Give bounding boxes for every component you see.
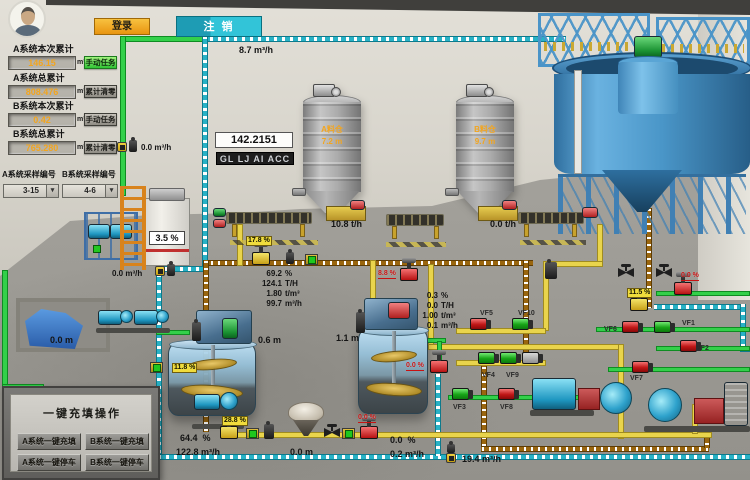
- pipe-green-out-line: [656, 291, 750, 296]
- valve-vf6[interactable]: [622, 321, 639, 333]
- valve-vf5[interactable]: [470, 318, 487, 330]
- panel-title: 一键充填操作: [11, 405, 153, 421]
- valve-vf2[interactable]: [680, 340, 697, 352]
- valve-vf10[interactable]: [512, 318, 529, 330]
- silo-a-name: A料仓: [303, 126, 361, 134]
- transmitter-icon: [545, 262, 557, 279]
- valve-label-vf4: VF4: [482, 372, 495, 379]
- feed-b-rate: 0.0 t/h: [490, 220, 516, 229]
- pit-pump-1[interactable]: [98, 310, 122, 325]
- valve-vf4[interactable]: [478, 352, 495, 364]
- conveyor-leg: [392, 226, 397, 239]
- bottom-control-valve[interactable]: [360, 426, 378, 439]
- reading-b-massflow: 0.0T/H: [408, 302, 454, 310]
- silo-body: [456, 102, 514, 192]
- sampler-a-label: A系统采样编号: [2, 171, 56, 179]
- total-value-b-total[interactable]: 765.280: [8, 141, 76, 155]
- filling-pump-2-motor[interactable]: [724, 382, 748, 426]
- fill-control-valve[interactable]: [220, 426, 238, 439]
- bottom-b-concentration: 0.0 %: [390, 436, 416, 445]
- platform-pump-1[interactable]: [88, 224, 110, 239]
- total-value-b-current[interactable]: 0.42: [8, 113, 76, 127]
- reset-total-a-button[interactable]: 累计清零: [84, 85, 117, 98]
- conveyor-leg: [434, 226, 439, 239]
- manual-valve-icon[interactable]: [324, 424, 340, 437]
- pipe-green-edge: [2, 270, 8, 390]
- conveyor-1-motor-b[interactable]: [213, 219, 226, 228]
- valve-opening-tag: 28.8 %: [222, 416, 248, 426]
- mixer-b-level: 1.1 m: [336, 334, 359, 343]
- valve-spare[interactable]: [522, 352, 539, 364]
- mixer-b-out-valve[interactable]: [430, 360, 448, 373]
- conveyor-1[interactable]: [226, 212, 312, 224]
- flow-left-upper-reading: 0.0 m³/h: [141, 144, 171, 152]
- feed-a-rate: 10.8 t/h: [331, 220, 362, 229]
- pit-pump-1-head[interactable]: [120, 310, 133, 323]
- mixer-discharge-pump-motor[interactable]: [194, 394, 220, 410]
- run-status-light: [93, 245, 101, 253]
- transmitter-icon: [264, 424, 274, 439]
- user-avatar-icon: [8, 0, 46, 38]
- filling-pump-1-motor[interactable]: [532, 378, 576, 410]
- transmitter-icon: [286, 252, 294, 264]
- valve-vf7[interactable]: [632, 361, 649, 373]
- pipe-yellow-bottom: [228, 432, 712, 438]
- bottom-a-flow: 122.8 m³/h: [176, 448, 220, 457]
- control-valve-red[interactable]: [400, 268, 418, 281]
- feeder-b-motor[interactable]: [502, 200, 517, 210]
- valve-label-vf3: VF3: [453, 404, 466, 411]
- b-one-key-fill-button[interactable]: B系统一键充填: [85, 433, 149, 450]
- valve-vf3[interactable]: [452, 388, 469, 400]
- hopper-dome: [288, 402, 324, 422]
- valve-vf9[interactable]: [500, 352, 517, 364]
- floor-hazard-strip: [230, 240, 318, 245]
- pipe-green-left-vertical: [120, 36, 126, 196]
- level-transmitter-icon: [356, 312, 365, 333]
- aeration-nozzle-icon: [292, 188, 306, 196]
- reading-b-flow: 0.1m³/h: [408, 322, 458, 330]
- valve-label-vf10: VF10: [518, 310, 535, 317]
- filling-pump-1[interactable]: [600, 382, 632, 414]
- total-label-a-total: A系统总累计: [13, 74, 65, 83]
- density-sensor-icon: [305, 254, 318, 265]
- thickener-drive-motor[interactable]: [634, 36, 662, 58]
- manual-task-a-button[interactable]: 手动任务: [84, 56, 117, 69]
- underflow-valve[interactable]: [630, 298, 648, 311]
- pipe-cyan-vertical: [202, 36, 208, 268]
- sensor-icon: [246, 428, 259, 439]
- floor-hazard-strip: [386, 242, 446, 247]
- truss-walkway: [544, 42, 644, 51]
- flow-left-lower-reading: 0.0 m³/h: [112, 270, 142, 278]
- chevron-down-icon[interactable]: ▾: [105, 185, 117, 197]
- pipe-green-vf7-line: [608, 367, 750, 372]
- panel-inner: 一键充填操作 A系统一键充填 B系统一键充填 A系统一键停车 B系统一键停车: [10, 394, 152, 472]
- flowmeter-icon: [446, 453, 456, 463]
- valve-sensor-icon: [150, 362, 163, 373]
- feeder-a-motor[interactable]: [350, 200, 365, 210]
- conveyor-3[interactable]: [518, 212, 584, 224]
- sampler-a-select[interactable]: 3-15▾: [3, 184, 59, 198]
- manual-valve-icon[interactable]: [618, 264, 634, 277]
- control-valve-yellow[interactable]: [252, 252, 270, 265]
- conveyor-2[interactable]: [386, 214, 444, 226]
- conveyor-leg: [524, 224, 529, 237]
- valve-label-vf6: VF6: [604, 326, 617, 333]
- flow-bottom-reading: 19.4 m³/h: [462, 455, 501, 464]
- one-key-panel: 一键充填操作 A系统一键充填 B系统一键充填 A系统一键停车 B系统一键停车: [2, 386, 160, 480]
- valve-opening-tag: 11.8 %: [172, 363, 197, 373]
- valve-vf1[interactable]: [654, 321, 671, 333]
- pit-pump-2[interactable]: [134, 310, 158, 325]
- underflow-opening-tag: 11.5 %: [627, 288, 652, 298]
- mixer-b-motor[interactable]: [388, 302, 410, 319]
- pipe-yellow-main: [428, 344, 624, 350]
- aeration-nozzle-icon: [445, 188, 459, 196]
- silo-b[interactable]: B料仓 9.7 m: [456, 84, 514, 218]
- reading-a-density: 1.80t/m³: [248, 290, 300, 298]
- silo-body: [303, 102, 361, 192]
- chevron-down-icon[interactable]: ▾: [46, 185, 58, 197]
- reading-a-concentration: 69.2%: [248, 270, 292, 278]
- valve-label-vf8: VF8: [500, 404, 513, 411]
- sampler-b-label: B系统采样编号: [62, 171, 116, 179]
- conveyor-leg: [300, 224, 305, 237]
- tank-red-stripe: [143, 249, 189, 252]
- a-one-key-fill-button[interactable]: A系统一键充填: [17, 433, 81, 450]
- pump-coupling: [578, 388, 600, 410]
- mixer-discharge-pump[interactable]: [220, 392, 238, 410]
- transmitter-icon: [447, 444, 455, 453]
- silo-b-level: 9.7 m: [456, 138, 514, 146]
- valve-opening-tag: 0.0 %: [406, 362, 424, 371]
- thickener-out-valve[interactable]: [674, 282, 692, 295]
- pipe-yellow-mixerb-feed: [370, 260, 376, 302]
- total-label-a-current: A系统本次累计: [13, 45, 74, 54]
- silo-a-level: 7.2 m: [303, 138, 361, 146]
- tag-display: GL LJ AI ACC: [216, 152, 294, 165]
- reading-b-density: 1.00t/m³: [408, 312, 456, 320]
- reading-a-flow: 99.7m³/h: [248, 300, 302, 308]
- feeder-opening-tag: 17.8 %: [246, 236, 272, 246]
- pipe-slurry-bottom: [481, 446, 709, 452]
- valve-opening-tag: 8.8 %: [378, 270, 396, 279]
- flowmeter-icon: [117, 142, 127, 152]
- flow-top-reading: 8.7 m³/h: [239, 46, 273, 55]
- agitator-blade: [366, 381, 423, 398]
- conveyor-leg: [572, 224, 577, 237]
- silo-motor-icon: [466, 84, 488, 97]
- pipe-yellow-feed-a: [237, 224, 243, 266]
- pit-level-reading: 0.0 m: [50, 336, 73, 345]
- conveyor-3-motor[interactable]: [582, 207, 598, 218]
- pump-base: [96, 328, 170, 333]
- transmitter-icon: [167, 264, 175, 276]
- filling-pump-2[interactable]: [648, 388, 682, 422]
- level-transmitter-icon: [192, 322, 201, 341]
- bottom-b-flow: 0.2 m³/h: [390, 450, 424, 459]
- valve-vf8[interactable]: [498, 388, 515, 400]
- total-label-b-current: B系统本次累计: [13, 102, 74, 111]
- sensor-icon: [342, 428, 355, 439]
- pit-pump-2-head[interactable]: [156, 310, 169, 323]
- mixer-a-level: 0.6 m: [258, 336, 281, 345]
- mixer-b-tank[interactable]: [358, 328, 428, 414]
- valve-label-vf1: VF1: [682, 320, 695, 327]
- total-value-a-current[interactable]: 146.15: [8, 56, 76, 70]
- transmitter-icon: [129, 140, 137, 152]
- reading-a-massflow: 124.1T/H: [248, 280, 298, 288]
- bottom-a-concentration: 64.4 %: [180, 434, 211, 443]
- b-one-key-stop-button[interactable]: B系统一键停车: [85, 454, 149, 471]
- mixer-a-motor[interactable]: [222, 318, 238, 339]
- hmi-scada-screen: 登录 注 销 A系统本次累计 146.15 m³ 手动任务 A系统总累计 808…: [0, 0, 750, 480]
- conveyor-leg: [232, 224, 237, 237]
- pump-base: [530, 410, 594, 416]
- silo-motor-icon: [313, 84, 335, 97]
- pipe-cyan-right: [654, 304, 744, 310]
- pump-base: [644, 426, 750, 432]
- tank-level-display: 3.5 %: [149, 231, 185, 245]
- total-label-b-total: B系统总累计: [13, 130, 65, 139]
- tank-top-unit: [149, 188, 185, 201]
- silo-b-name: B料仓: [456, 126, 514, 134]
- valve-label-vf5: VF5: [480, 310, 493, 317]
- pump-coupling: [694, 398, 724, 424]
- login-button[interactable]: 登录: [94, 18, 150, 35]
- logout-button[interactable]: 注 销: [176, 16, 262, 37]
- reading-b-concentration: 0.3%: [408, 292, 448, 300]
- reset-total-b-button[interactable]: 累计清零: [84, 141, 117, 154]
- valve-opening-tag: 0.0 %: [358, 414, 376, 423]
- thickener-standpipe: [574, 70, 582, 174]
- manual-task-b-button[interactable]: 手动任务: [84, 113, 117, 126]
- valve-label-vf9: VF9: [506, 372, 519, 379]
- thickener-feedwell: [618, 62, 678, 114]
- manual-valve-icon[interactable]: [656, 264, 672, 277]
- flush-water-tank[interactable]: 3.5 %: [142, 198, 190, 266]
- flowmeter-icon: [155, 266, 165, 276]
- density-display: 142.2151: [215, 132, 293, 148]
- valve-opening-tag: 0.0 %: [681, 272, 699, 281]
- a-one-key-stop-button[interactable]: A系统一键停车: [17, 454, 81, 471]
- hopper-level-reading: 0.0 m: [290, 448, 313, 457]
- pipe-cyan-mixerb-out: [435, 374, 441, 456]
- total-value-a-total[interactable]: 808.476: [8, 85, 76, 99]
- valve-label-vf7: VF7: [630, 375, 643, 382]
- ladder: [120, 186, 146, 270]
- silo-a[interactable]: A料仓 7.2 m: [303, 84, 361, 218]
- valve-label-vf2: VF2: [696, 345, 709, 352]
- conveyor-1-motor[interactable]: [213, 208, 226, 217]
- sampler-b-select[interactable]: 4-6▾: [62, 184, 118, 198]
- floor-hazard-strip: [520, 240, 586, 245]
